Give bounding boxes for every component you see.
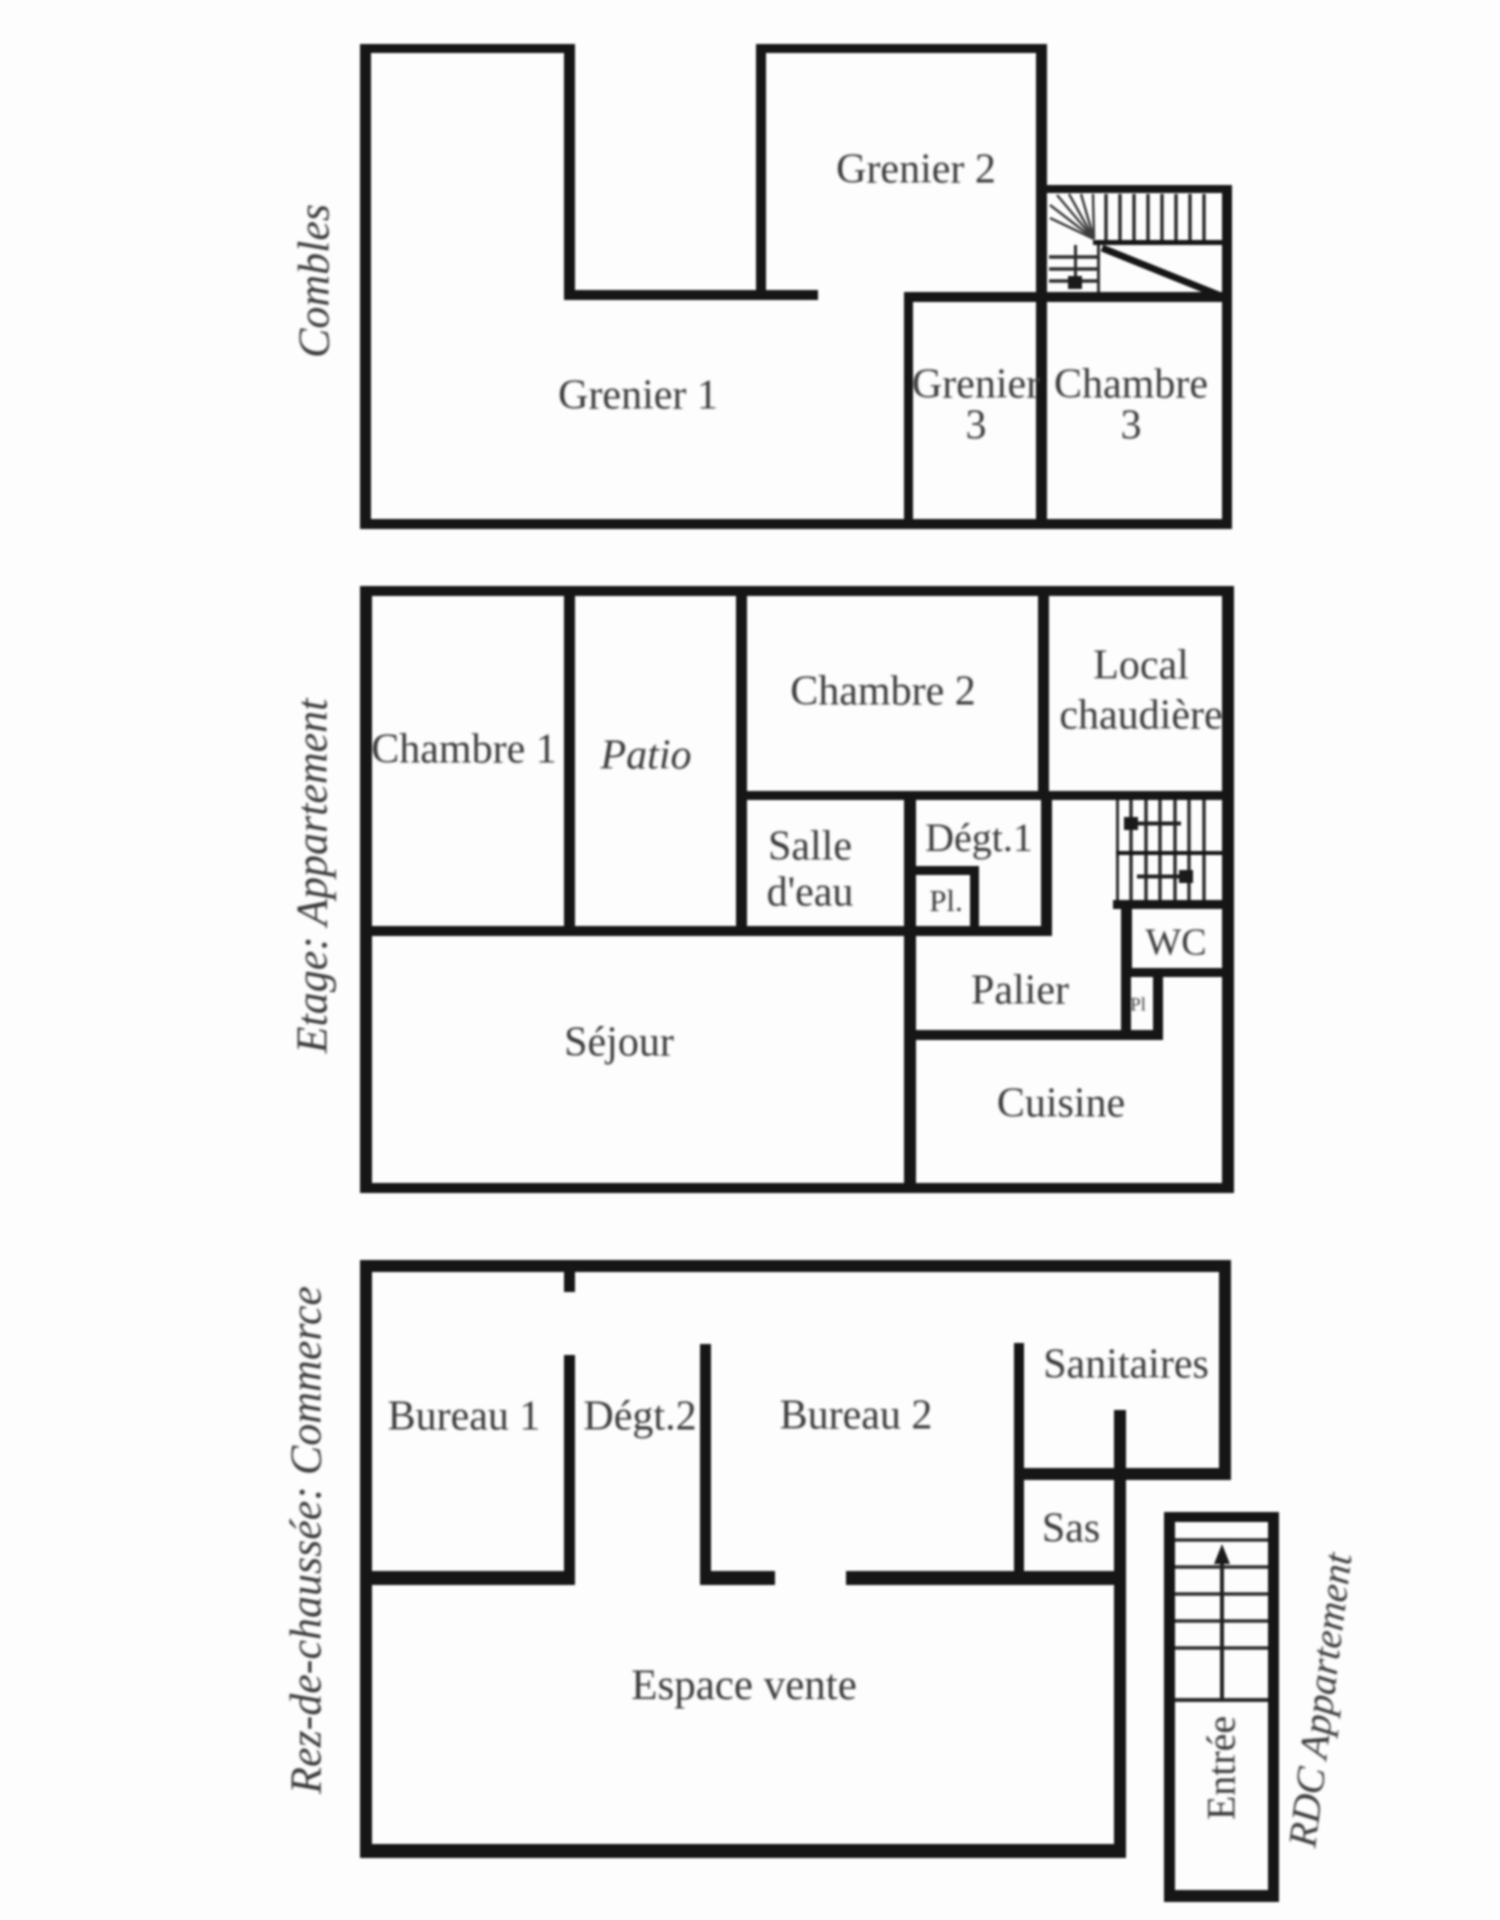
svg-text:Pl: Pl <box>1130 995 1146 1016</box>
svg-text:Cuisine: Cuisine <box>997 1081 1125 1127</box>
svg-text:Grenier 2: Grenier 2 <box>836 147 996 193</box>
svg-text:Dégt.1: Dégt.1 <box>925 815 1033 860</box>
svg-text:Espace vente: Espace vente <box>631 1662 857 1709</box>
svg-text:Dégt.2: Dégt.2 <box>583 1394 696 1440</box>
svg-text:WC: WC <box>1145 921 1206 963</box>
svg-text:Palier: Palier <box>971 968 1069 1014</box>
svg-text:Grenier 1: Grenier 1 <box>558 373 718 419</box>
svg-text:Salled'eau: Salled'eau <box>767 824 854 916</box>
svg-text:Entrée: Entrée <box>1199 1716 1244 1820</box>
svg-text:Pl.: Pl. <box>929 883 963 918</box>
svg-text:Séjour: Séjour <box>564 1020 674 1066</box>
svg-text:Etage: Appartement: Etage: Appartement <box>288 697 337 1055</box>
svg-text:Combles: Combles <box>290 204 339 358</box>
svg-text:Sas: Sas <box>1042 1506 1100 1552</box>
svg-text:Chambre 2: Chambre 2 <box>790 669 975 715</box>
svg-text:Chambre 1: Chambre 1 <box>371 727 556 773</box>
svg-text:Bureau 2: Bureau 2 <box>780 1393 933 1439</box>
svg-text:Sanitaires: Sanitaires <box>1043 1342 1209 1388</box>
svg-text:Patio: Patio <box>600 733 692 779</box>
svg-text:Rez-de-chaussée: Commerce: Rez-de-chaussée: Commerce <box>282 1286 331 1795</box>
svg-text:Bureau 1: Bureau 1 <box>388 1394 541 1440</box>
